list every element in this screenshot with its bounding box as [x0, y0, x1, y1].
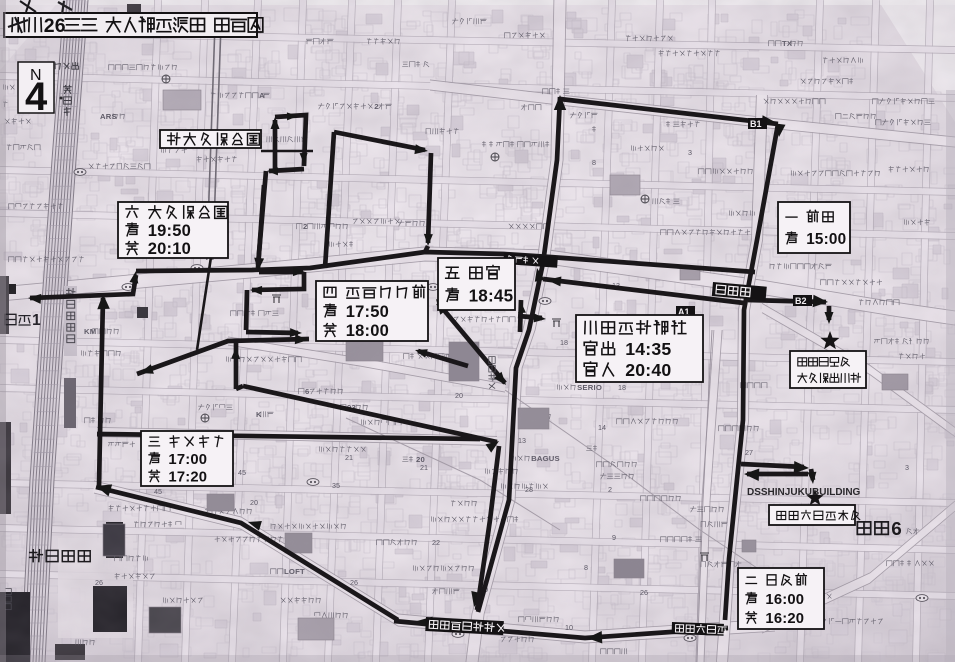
svg-text:20:10: 20:10 [148, 240, 191, 258]
svg-text:4: 4 [25, 75, 48, 119]
svg-text:18:45: 18:45 [469, 287, 514, 306]
svg-text:1: 1 [32, 312, 41, 329]
svg-text:16:00: 16:00 [765, 592, 804, 608]
svg-text:17:20: 17:20 [168, 469, 207, 485]
svg-text:26: 26 [44, 15, 66, 37]
svg-text:17:00: 17:00 [168, 452, 207, 468]
svg-text:16:20: 16:20 [765, 611, 804, 627]
svg-text:14:35: 14:35 [625, 339, 671, 359]
svg-text:19:50: 19:50 [148, 222, 191, 240]
svg-text:DSSHINJUKUBUILDING: DSSHINJUKUBUILDING [747, 487, 861, 498]
svg-text:B1: B1 [750, 119, 762, 129]
svg-text:15:00: 15:00 [806, 231, 846, 248]
svg-text:B2: B2 [795, 296, 807, 306]
svg-text:6: 6 [891, 519, 902, 540]
svg-text:17:50: 17:50 [346, 303, 389, 321]
svg-text:20:40: 20:40 [625, 360, 671, 380]
svg-text:18:00: 18:00 [346, 322, 389, 340]
